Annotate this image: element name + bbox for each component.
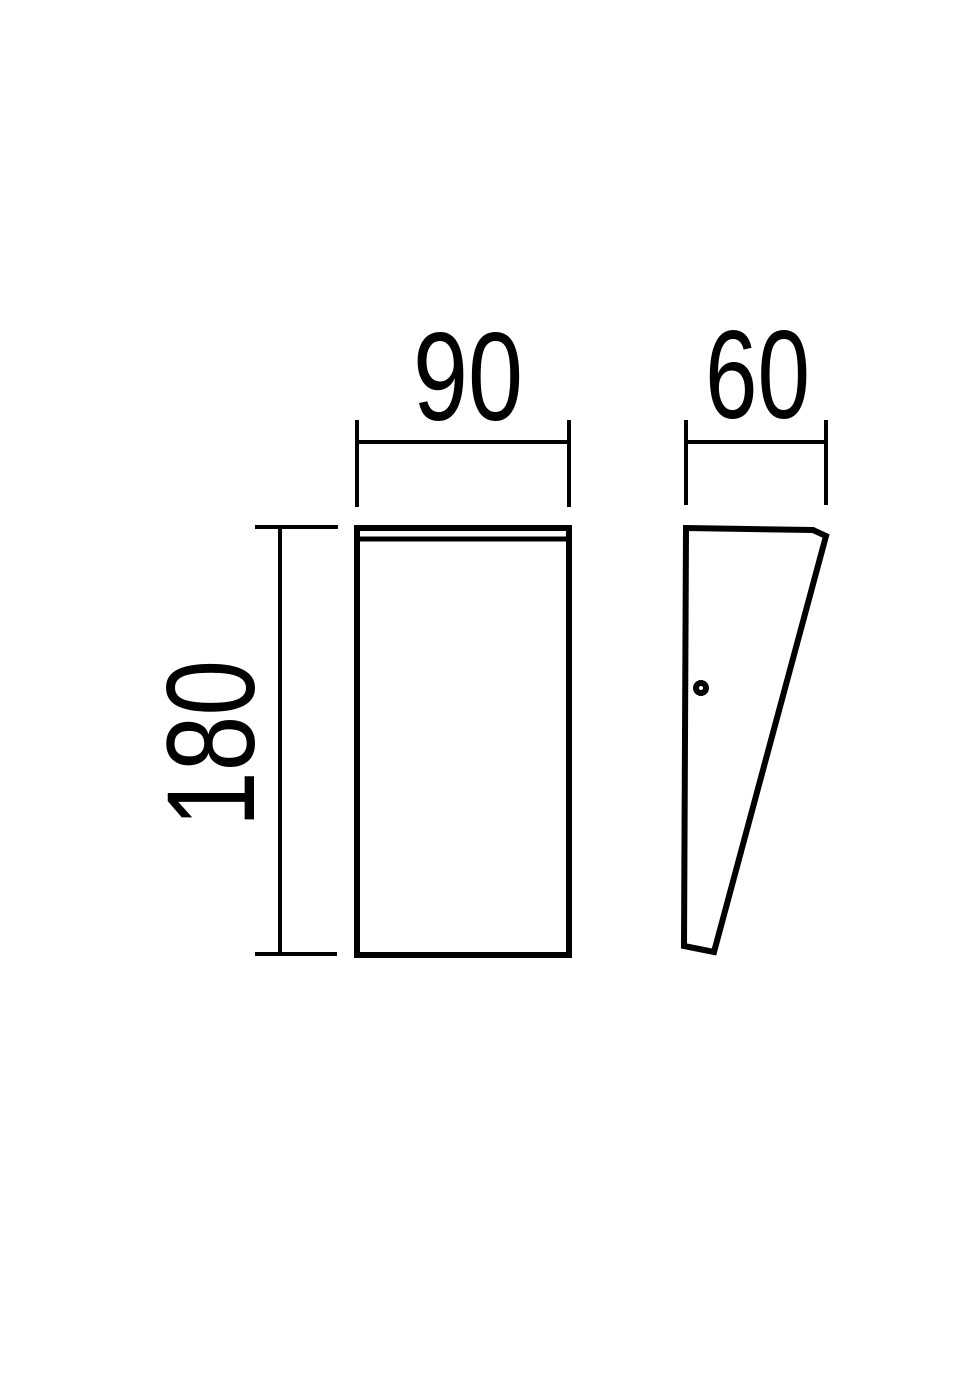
front-view-outline	[357, 528, 569, 955]
width-dimension: 90	[357, 308, 569, 507]
side-view-outline	[684, 528, 826, 952]
height-dimension: 180	[142, 527, 338, 954]
width-dimension-label: 90	[413, 308, 523, 447]
front-view	[355, 528, 571, 955]
depth-dimension: 60	[686, 306, 826, 505]
drawing-canvas: 90 60 180	[0, 0, 980, 1400]
height-dimension-label: 180	[142, 660, 281, 827]
side-view	[684, 528, 826, 952]
dimension-drawing: 90 60 180	[0, 0, 980, 1400]
screw-hole-center-dot	[699, 686, 703, 690]
depth-dimension-label: 60	[705, 306, 810, 445]
